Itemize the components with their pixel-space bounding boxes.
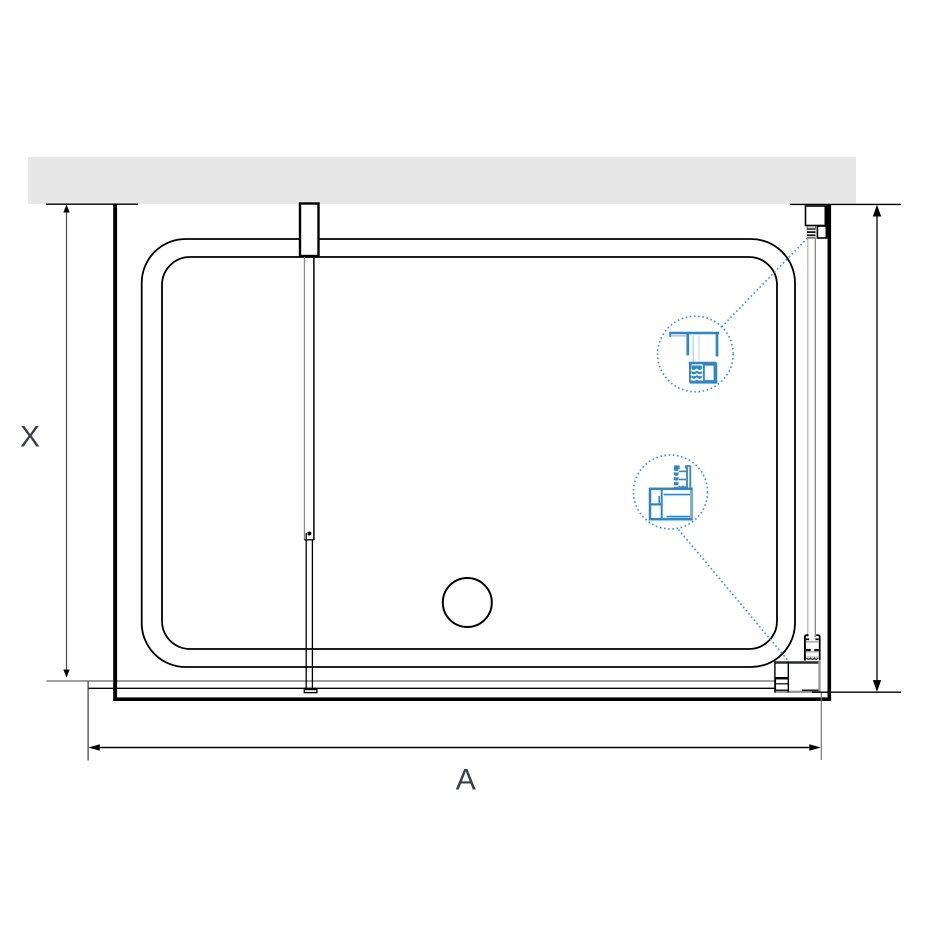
svg-text:X: X <box>20 421 40 454</box>
svg-text:A: A <box>456 764 476 797</box>
